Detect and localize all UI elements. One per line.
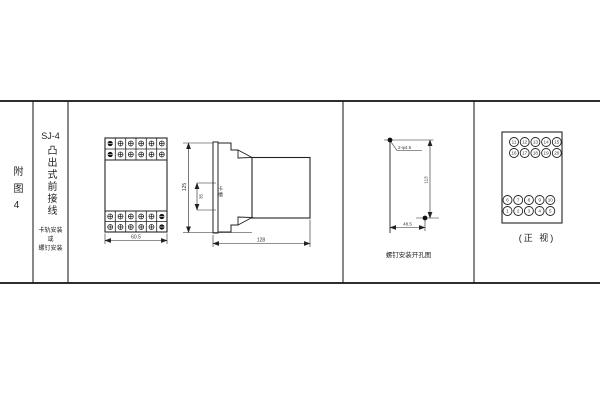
svg-text:14: 14 xyxy=(544,140,550,145)
svg-text:5: 5 xyxy=(549,209,552,214)
rail-slot-dim-label: 35 xyxy=(199,194,204,200)
svg-text:12: 12 xyxy=(522,140,528,145)
svg-text:1: 1 xyxy=(506,209,509,214)
svg-text:20: 20 xyxy=(554,151,560,156)
side-depth-dim-label: 128 xyxy=(257,238,266,244)
svg-text:18: 18 xyxy=(533,151,539,156)
rail-slot-text: 卡槽 xyxy=(217,186,224,198)
svg-text:2: 2 xyxy=(517,209,520,214)
title-block-grid xyxy=(0,101,600,283)
terminal-view-caption: (正 视) xyxy=(474,231,600,244)
front-width-dim-label: 60.5 xyxy=(131,235,141,241)
svg-text:15: 15 xyxy=(554,140,560,145)
wiring-type-label: 凸出式前接线 xyxy=(43,145,58,217)
side-height-dim-label: 125 xyxy=(182,183,188,192)
terminal-circles xyxy=(503,138,561,216)
figure-number-label: 附图4 xyxy=(9,166,24,218)
svg-text:11: 11 xyxy=(512,140,517,145)
svg-text:10: 10 xyxy=(548,198,554,203)
svg-text:19: 19 xyxy=(544,151,550,156)
svg-text:9: 9 xyxy=(538,198,541,203)
hole-vertical-dim-label: 113 xyxy=(424,176,429,184)
drill-diagram-caption: 螺钉安装开孔图 xyxy=(343,249,474,259)
model-label: SJ-4 xyxy=(41,131,60,141)
svg-text:8: 8 xyxy=(528,198,531,203)
side-view-drawing: 125 35 128 xyxy=(182,142,310,247)
mount-hole-top xyxy=(388,138,393,143)
svg-text:7: 7 xyxy=(517,198,520,203)
terminal-face-view: 11 12 13 14 15 16 17 18 19 20 6 7 8 9 10… xyxy=(502,132,562,223)
hole-size-label: 2-φ4.5 xyxy=(398,145,412,150)
svg-text:6: 6 xyxy=(506,198,509,203)
model-cell: SJ-4 凸出式前接线 卡轨安装 或 螺钉安装 xyxy=(33,101,68,283)
diagram-canvas: 60.5 125 35 xyxy=(0,0,600,400)
mounting-method-label: 卡轨安装 或 螺钉安装 xyxy=(38,227,62,254)
mount-hole-bottom xyxy=(423,216,428,221)
svg-text:16: 16 xyxy=(511,151,517,156)
hole-horizontal-dim-label: 48.5 xyxy=(403,222,412,227)
svg-text:13: 13 xyxy=(533,140,539,145)
front-view-drawing: 60.5 xyxy=(105,138,167,244)
figure-number-cell: 附图4 xyxy=(0,101,33,283)
svg-text:3: 3 xyxy=(528,209,531,214)
svg-text:4: 4 xyxy=(538,209,541,214)
drill-hole-diagram: 2-φ4.5 113 48.5 xyxy=(384,138,439,233)
drawing-sheet: 60.5 125 35 xyxy=(0,0,600,400)
svg-text:17: 17 xyxy=(522,151,528,156)
